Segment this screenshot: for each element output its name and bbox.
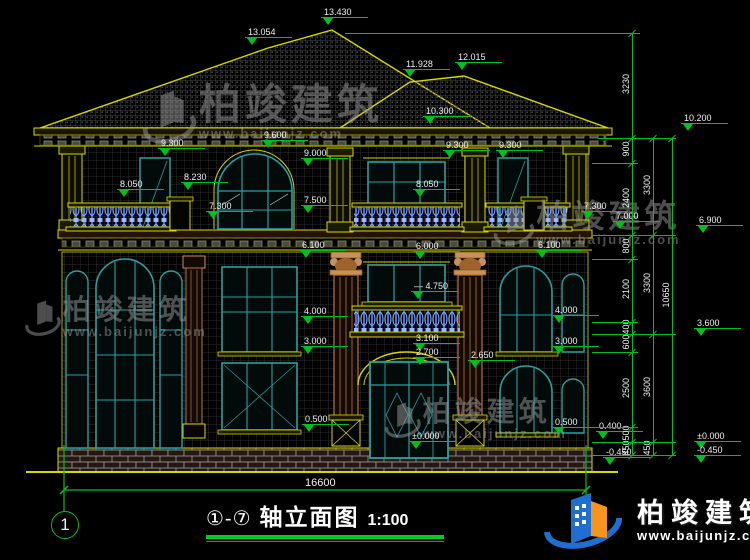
tall-arched-windows-left (66, 259, 182, 448)
eave-cornice (34, 128, 612, 146)
central-column-right (453, 252, 487, 446)
total-width-dimension: 16600 (305, 477, 336, 489)
title-underline-thin (206, 541, 444, 542)
stacked-windows-left-center (218, 267, 301, 434)
title-block: ①-⑦ 轴立面图 1:100 (206, 498, 444, 542)
title-axis-range: ①-⑦ (206, 506, 252, 531)
brand-name: 柏竣建筑 (637, 499, 750, 529)
brand-logo-icon (533, 488, 633, 554)
central-column-left (329, 252, 363, 446)
center-window-second-floor (363, 158, 450, 205)
second-floor-pilaster-left (327, 148, 353, 232)
second-floor-pilaster-right (462, 148, 488, 232)
center-window-mezzanine (362, 262, 452, 306)
title-underline-thick (206, 535, 444, 539)
balcony-center-second-floor (350, 203, 464, 231)
entrance-door (370, 362, 448, 458)
brand-url: www.baijunjz.com (637, 528, 750, 543)
mid-floor-band (58, 230, 592, 250)
axis-bubble-1: 1 (51, 511, 79, 539)
arched-window-second-floor (214, 150, 294, 229)
cad-elevation-drawing-canvas: 柏竣建筑www.baijunjz.com柏竣建筑www.baijunjz.com… (0, 0, 750, 560)
drawing-scale: 1:100 (368, 512, 409, 530)
ground-floor-pilaster-left (183, 256, 205, 438)
drawing-title: 轴立面图 (260, 498, 360, 532)
building-elevation-drawing (0, 0, 750, 560)
axis-bubble-label: 1 (60, 515, 69, 535)
balcony-center-mezzanine (350, 306, 464, 337)
arched-windows-right-upper (496, 266, 584, 356)
brick-plinth (58, 448, 592, 472)
brand-logo-block: 柏竣建筑 www.baijunjz.com (533, 488, 750, 554)
